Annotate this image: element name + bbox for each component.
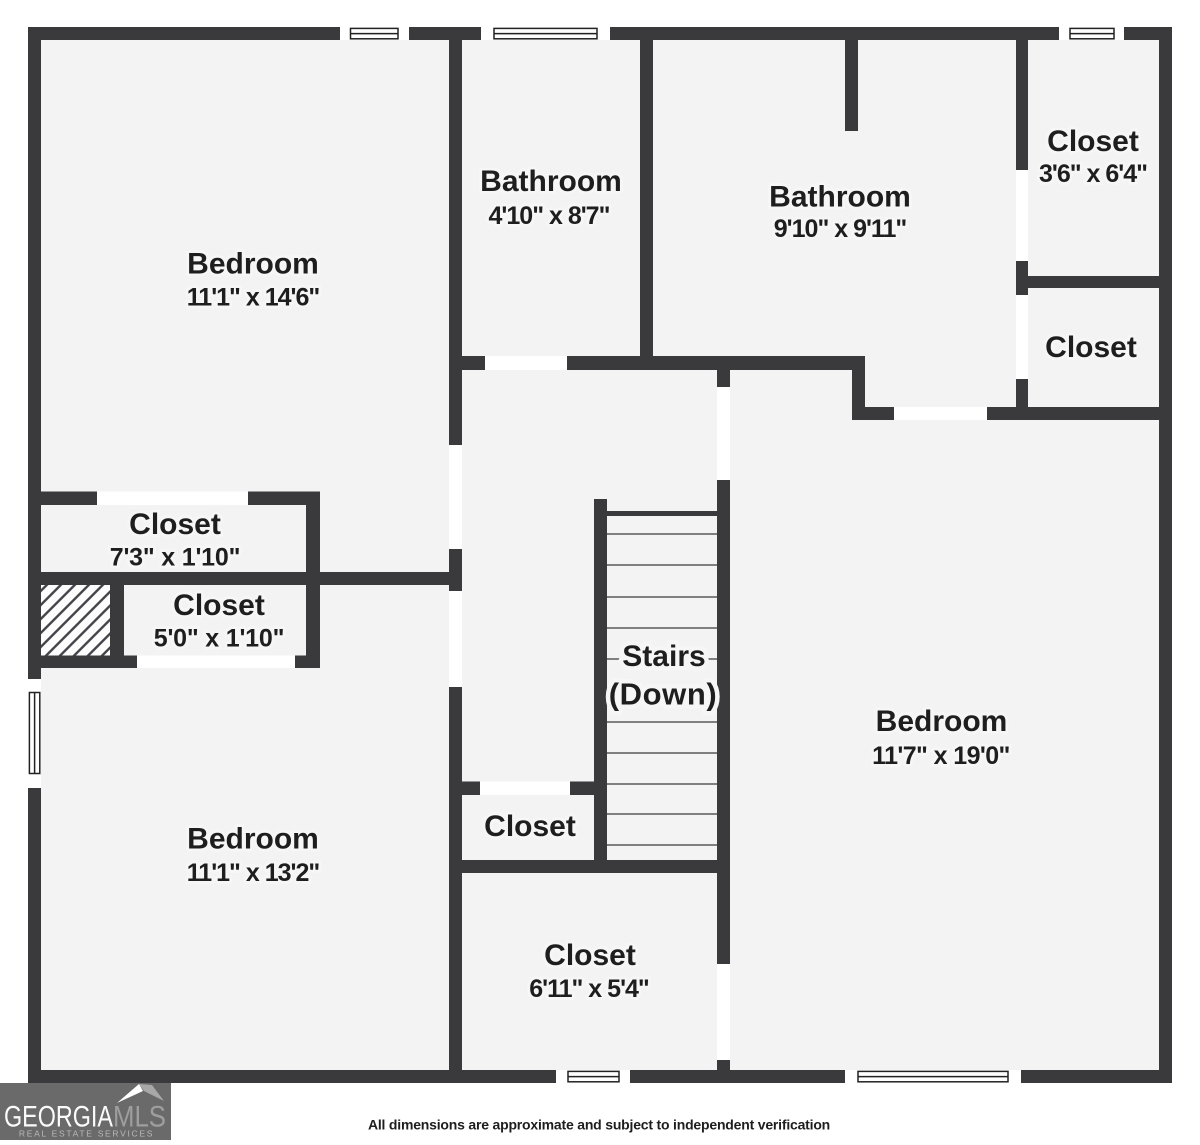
- svg-text:Closet: Closet: [544, 939, 636, 972]
- svg-text:Closet: Closet: [1047, 125, 1139, 158]
- svg-text:All dimensions are approximate: All dimensions are approximate and subje…: [368, 1117, 830, 1133]
- svg-text:11'1" x 13'2": 11'1" x 13'2": [187, 859, 320, 887]
- svg-text:9'10" x 9'11": 9'10" x 9'11": [774, 215, 907, 243]
- svg-text:Bathroom: Bathroom: [480, 165, 622, 198]
- svg-text:Bathroom: Bathroom: [769, 181, 911, 214]
- svg-text:4'10" x 8'7": 4'10" x 8'7": [489, 202, 610, 230]
- svg-text:11'7" x 19'0": 11'7" x 19'0": [872, 742, 1010, 770]
- svg-text:5'0" x 1'10": 5'0" x 1'10": [154, 625, 285, 653]
- svg-text:7'3" x 1'10": 7'3" x 1'10": [110, 544, 241, 572]
- svg-text:Closet: Closet: [1045, 331, 1137, 364]
- svg-text:Closet: Closet: [173, 589, 265, 622]
- svg-text:3'6" x 6'4": 3'6" x 6'4": [1039, 160, 1147, 188]
- svg-text:11'1" x 14'6": 11'1" x 14'6": [187, 284, 320, 312]
- svg-text:REAL ESTATE SERVICES: REAL ESTATE SERVICES: [19, 1129, 154, 1139]
- svg-text:Bedroom: Bedroom: [876, 705, 1008, 738]
- svg-text:Closet: Closet: [129, 508, 221, 541]
- svg-text:Bedroom: Bedroom: [187, 248, 319, 281]
- svg-text:Stairs: Stairs: [622, 640, 705, 673]
- svg-text:Closet: Closet: [484, 810, 576, 843]
- svg-text:Bedroom: Bedroom: [187, 823, 319, 856]
- svg-text:6'11" x 5'4": 6'11" x 5'4": [529, 975, 649, 1003]
- svg-text:(Down): (Down): [609, 677, 718, 712]
